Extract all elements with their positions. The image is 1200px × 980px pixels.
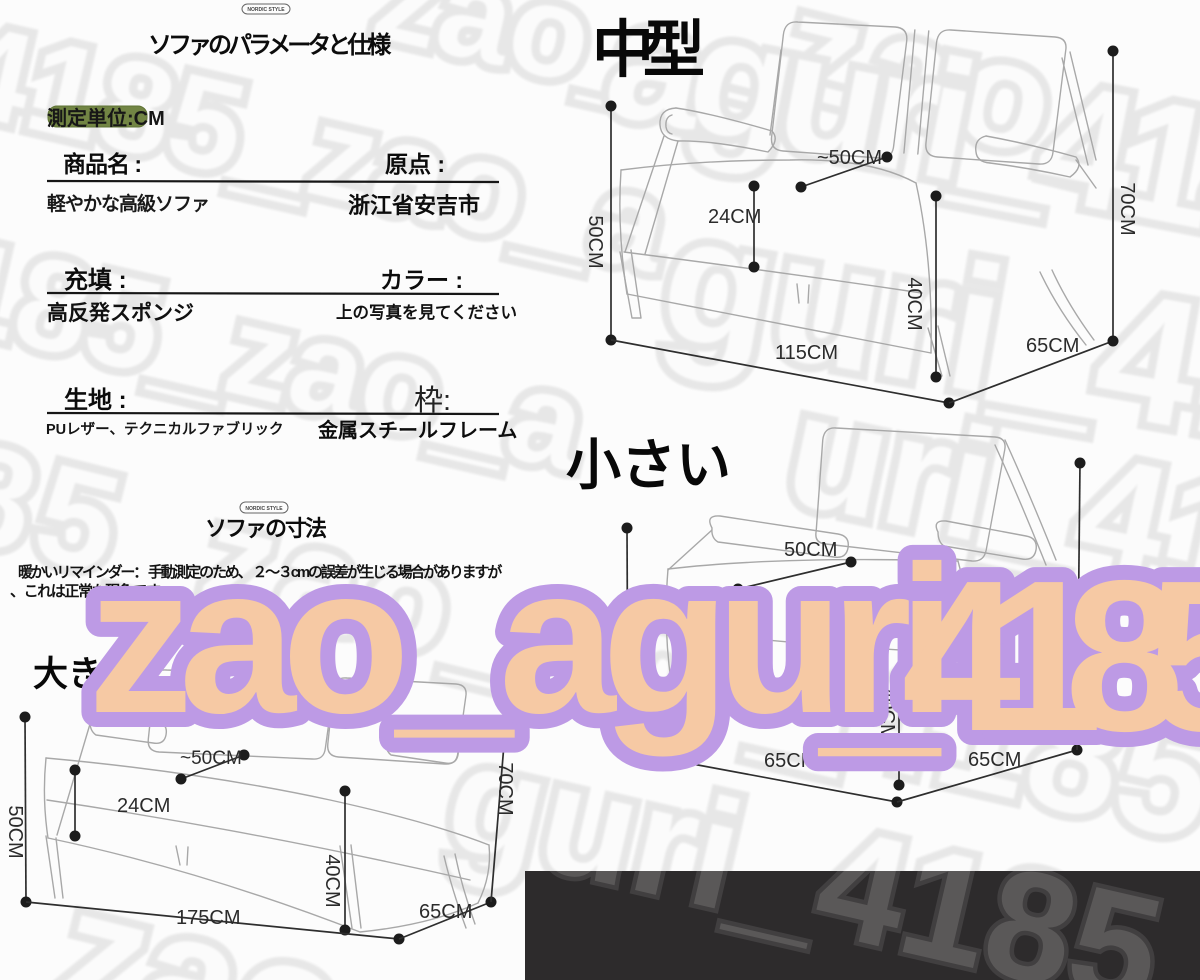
svg-text:65CM: 65CM <box>1026 335 1079 357</box>
svg-text:40CM: 40CM <box>903 277 925 330</box>
svg-text:70CM: 70CM <box>1116 182 1138 235</box>
svg-text:115CM: 115CM <box>775 342 838 364</box>
svg-text:商品名 :: 商品名 : <box>63 151 141 177</box>
svg-text:カラー :: カラー : <box>380 267 463 293</box>
svg-text:50CM: 50CM <box>584 215 606 268</box>
svg-text:浙江省安吉市: 浙江省安吉市 <box>348 193 480 218</box>
svg-text:金属スチールフレーム: 金属スチールフレーム <box>317 418 517 442</box>
svg-text:NORDIC STYLE: NORDIC STYLE <box>245 506 283 512</box>
svg-text:中型: 中型 <box>592 16 703 85</box>
svg-text:zao_aguri: zao_aguri <box>88 522 942 757</box>
svg-text:測定単位:CM: 測定単位:CM <box>47 106 165 130</box>
svg-text:軽やかな高級ソファ: 軽やかな高級ソファ <box>47 192 209 215</box>
svg-text:充填 :: 充填 : <box>64 266 127 294</box>
svg-text:24CM: 24CM <box>117 795 170 817</box>
svg-text:小さい: 小さい <box>566 434 731 496</box>
svg-text:高反発スポンジ: 高反発スポンジ <box>47 301 194 325</box>
svg-text:生地 :: 生地 : <box>64 387 127 414</box>
svg-text:ソファのパラメータと仕様: ソファのパラメータと仕様 <box>148 31 392 59</box>
svg-text:枠:: 枠: <box>414 384 451 417</box>
svg-text:上の写真を見てください: 上の写真を見てください <box>336 302 517 322</box>
svg-text:原点 :: 原点 : <box>385 151 445 177</box>
svg-text:175CM: 175CM <box>176 907 240 929</box>
svg-text:40CM: 40CM <box>321 854 343 907</box>
svg-text:NORDIC STYLE: NORDIC STYLE <box>247 7 285 13</box>
svg-text:65CM: 65CM <box>419 901 472 923</box>
svg-text:_4185: _4185 <box>817 535 1200 776</box>
svg-text:PUレザー、テクニカルファブリック: PUレザー、テクニカルファブリック <box>46 420 284 438</box>
svg-text:~50CM: ~50CM <box>817 147 882 169</box>
svg-text:70CM: 70CM <box>494 762 516 815</box>
svg-text:50CM: 50CM <box>4 805 26 858</box>
svg-text:24CM: 24CM <box>708 206 761 228</box>
